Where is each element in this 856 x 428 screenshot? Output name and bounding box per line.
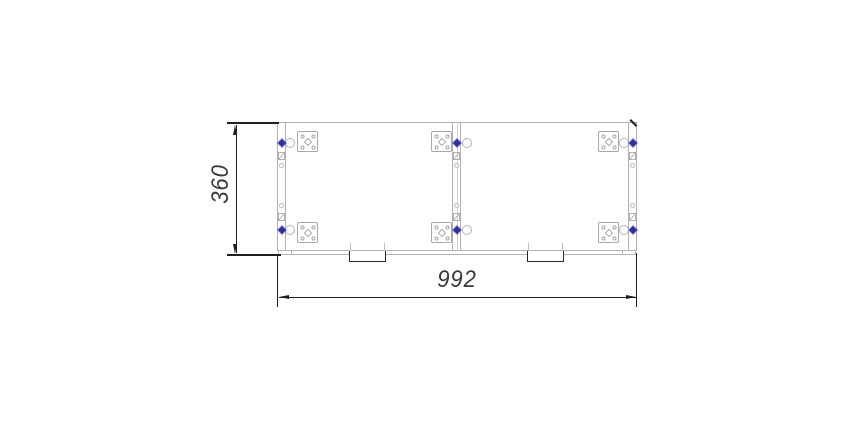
bottom-tab-right-outline bbox=[527, 251, 564, 262]
mounting-plate bbox=[598, 131, 619, 152]
arrowhead-right-icon bbox=[626, 295, 636, 299]
width-dimension-line bbox=[279, 297, 636, 298]
arrowhead-left-icon bbox=[279, 295, 289, 299]
mounting-plate bbox=[297, 131, 318, 152]
arrowhead-down-icon bbox=[233, 244, 237, 254]
mounting-plate bbox=[431, 131, 452, 152]
strip-hole bbox=[454, 163, 459, 168]
height-dimension-label: 360 bbox=[209, 164, 233, 204]
hinge-block bbox=[278, 152, 285, 160]
strip-hole bbox=[630, 203, 635, 208]
bottom-tab-left-outline bbox=[349, 251, 386, 262]
hinge-block bbox=[278, 213, 285, 221]
latch-ring bbox=[285, 138, 295, 148]
width-extension-line-left bbox=[277, 255, 278, 307]
height-extension-line-bottom bbox=[227, 254, 281, 256]
corner-foot-right bbox=[622, 250, 636, 255]
hinge-block bbox=[629, 213, 636, 221]
width-extension-line-right bbox=[636, 253, 638, 307]
strip-hole bbox=[630, 163, 635, 168]
mounting-plate bbox=[431, 222, 452, 243]
latch-ring bbox=[462, 225, 472, 235]
drawing-canvas: 360 992 bbox=[0, 0, 856, 428]
latch-ring bbox=[285, 225, 295, 235]
mounting-plate bbox=[598, 222, 619, 243]
mounting-plate bbox=[297, 222, 318, 243]
latch-ring bbox=[619, 225, 629, 235]
bottom-rail-line bbox=[278, 254, 636, 255]
width-dimension-label: 992 bbox=[437, 268, 477, 292]
latch-ring bbox=[619, 138, 629, 148]
hinge-block bbox=[453, 213, 460, 221]
strip-hole bbox=[279, 203, 284, 208]
arrowhead-up-icon bbox=[233, 125, 237, 135]
strip-hole bbox=[279, 163, 284, 168]
latch-ring bbox=[462, 138, 472, 148]
height-extension-line-top bbox=[227, 122, 279, 124]
strip-hole bbox=[454, 203, 459, 208]
hinge-block bbox=[453, 152, 460, 160]
hinge-block bbox=[629, 152, 636, 160]
height-dimension-line bbox=[236, 125, 237, 253]
